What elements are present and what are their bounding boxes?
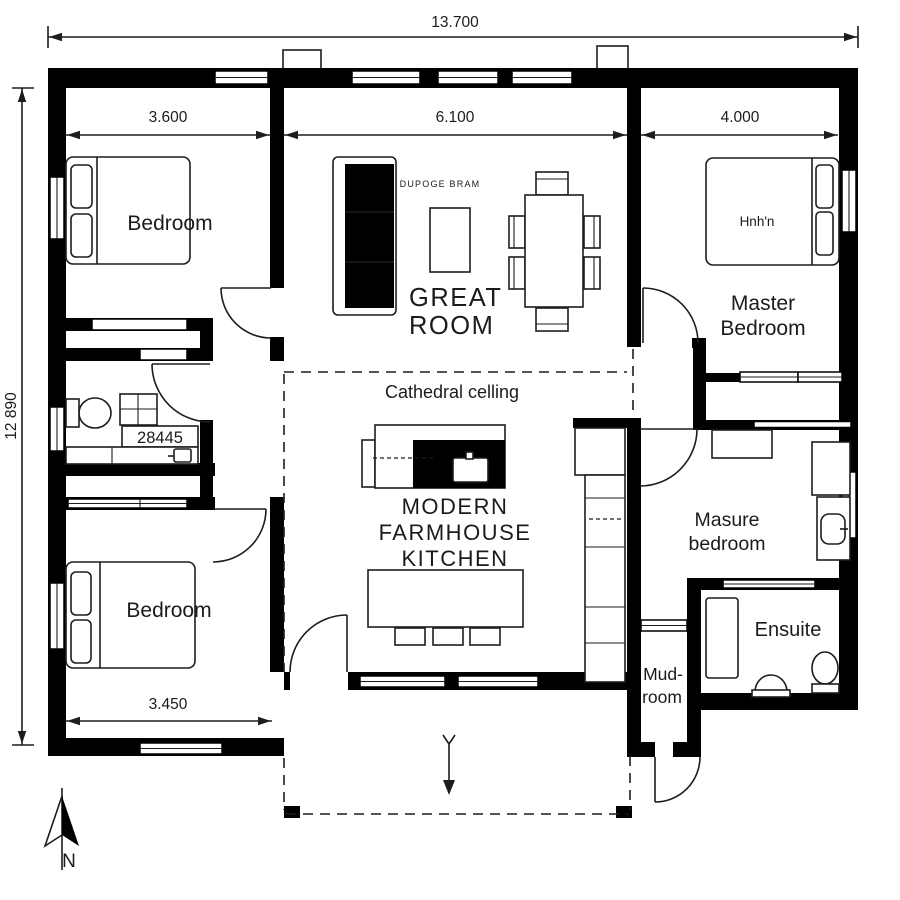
room-label-master-2: Bedroom [720, 317, 805, 340]
great-room-width-dimension: 6.100 [436, 109, 475, 126]
ensuite-fixtures [706, 598, 839, 697]
bedroom-top-width-dimension: 3.600 [149, 109, 188, 126]
kitchen-counter [362, 425, 505, 488]
room-label-bedroom-bottom: Bedroom [126, 599, 211, 622]
bed-top-left [66, 157, 190, 264]
overall-depth-dimension: 12 890 [3, 392, 20, 440]
cathedral-ceiling-label: Cathedral celling [385, 382, 519, 402]
bedroom-bottom-width-dimension: 3.450 [149, 696, 188, 713]
master-bed-text: Hnh'n [740, 214, 775, 229]
master-width-dimension: 4.000 [721, 109, 760, 126]
room-label-mud-2: room [642, 687, 682, 707]
room-label-masure-1: Masure [694, 509, 759, 531]
room-label-great-1: GREAT [409, 284, 502, 312]
pantry-column [575, 428, 625, 682]
bed-master [706, 158, 839, 265]
overall-width-dimension: 13.700 [431, 14, 479, 31]
dining-set [509, 172, 600, 331]
room-label-kitchen-3: KITCHEN [401, 546, 508, 571]
north-label: N [62, 851, 76, 872]
kitchen-island [368, 570, 523, 645]
sofa-brand-text: DUPOGE BRAM [400, 179, 481, 189]
room-label-kitchen-2: FARMHOUSE [379, 520, 532, 545]
bath-code-text: 28445 [137, 429, 183, 447]
room-label-great-2: ROOM [409, 312, 494, 340]
room-label-kitchen-1: MODERN [402, 494, 509, 519]
floor-plan-drawing: 13.700 12 890 3.600 6.100 4.000 3.450 Be… [0, 0, 900, 900]
room-label-masure-2: bedroom [689, 533, 766, 555]
room-label-bedroom-top: Bedroom [127, 212, 212, 235]
entry-arrow [443, 735, 455, 795]
floor-plan: 13.700 12 890 3.600 6.100 4.000 3.450 Be… [0, 0, 900, 900]
coffee-table [430, 208, 470, 272]
room-label-master-1: Master [731, 292, 795, 315]
room-label-mud-1: Mud- [643, 664, 683, 684]
sofa [333, 157, 396, 315]
room-label-ensuite: Ensuite [755, 619, 822, 641]
